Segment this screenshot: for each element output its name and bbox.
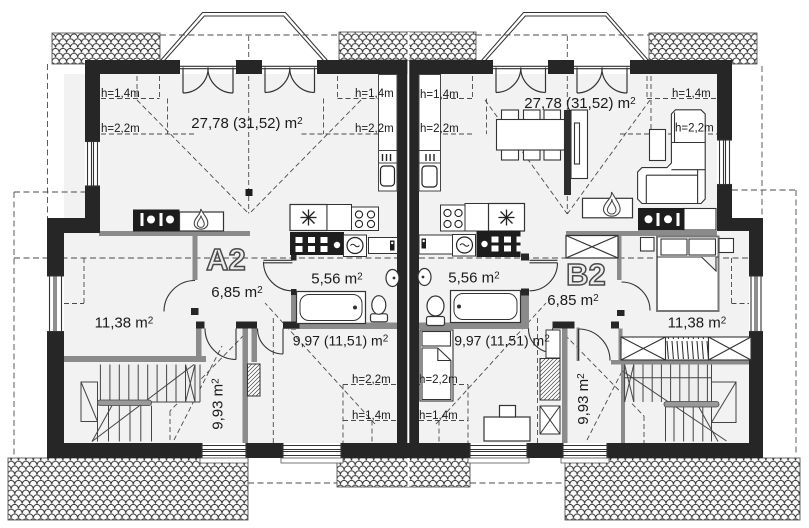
svg-text:6,85 m2: 6,85 m2: [211, 284, 263, 301]
svg-text:A2: A2: [206, 242, 246, 277]
svg-text:h=2,2m: h=2,2m: [355, 123, 394, 135]
svg-text:9,93 m2: 9,93 m2: [210, 378, 227, 430]
svg-text:5,56 m2: 5,56 m2: [448, 270, 500, 287]
svg-text:6,85 m2: 6,85 m2: [547, 292, 599, 309]
svg-text:9,97 (11,51) m2: 9,97 (11,51) m2: [293, 333, 389, 349]
svg-text:B2: B2: [566, 257, 606, 292]
svg-text:11,38 m2: 11,38 m2: [95, 315, 154, 332]
svg-text:h=2,2m: h=2,2m: [352, 374, 391, 386]
svg-text:h=2,2m: h=2,2m: [101, 123, 140, 135]
svg-text:h=2,2m: h=2,2m: [675, 123, 714, 135]
svg-text:9,97 (11,51) m2: 9,97 (11,51) m2: [454, 333, 550, 349]
svg-text:h=1,4m: h=1,4m: [101, 88, 140, 100]
svg-text:h=1,4m: h=1,4m: [420, 89, 459, 101]
svg-text:h=1,4m: h=1,4m: [419, 410, 458, 422]
svg-text:9,93 m2: 9,93 m2: [575, 373, 592, 425]
svg-text:h=1,4m: h=1,4m: [352, 410, 391, 422]
svg-text:h=2,2m: h=2,2m: [419, 374, 458, 386]
svg-text:h=1,4m: h=1,4m: [672, 88, 711, 100]
svg-text:h=2,2m: h=2,2m: [420, 123, 459, 135]
svg-text:27,78 (31,52) m2: 27,78 (31,52) m2: [191, 115, 303, 132]
svg-text:27,78 (31,52) m2: 27,78 (31,52) m2: [524, 95, 636, 112]
svg-text:h=1,4m: h=1,4m: [355, 88, 394, 100]
svg-text:5,56 m2: 5,56 m2: [311, 271, 363, 288]
svg-text:11,38 m2: 11,38 m2: [668, 315, 727, 332]
